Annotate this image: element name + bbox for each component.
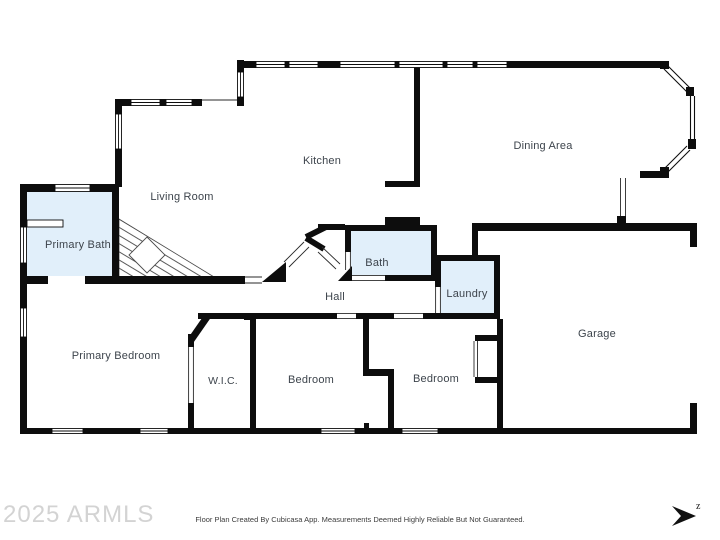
window (238, 72, 244, 97)
window (289, 62, 318, 68)
bath-counter (27, 220, 63, 227)
window (140, 429, 168, 434)
room-label-bedroom-right: Bedroom (413, 373, 459, 385)
fireplace-hatch (119, 219, 219, 280)
window (55, 185, 90, 192)
window (447, 62, 473, 68)
room-label-primary-bath: Primary Bath (45, 239, 111, 251)
floor-plan-page: { "rooms": { "living_room": "Living Room… (0, 0, 720, 540)
window (52, 429, 83, 434)
compass-label: z (696, 501, 700, 512)
window (166, 100, 192, 106)
room-label-primary-bedroom: Primary Bedroom (72, 350, 161, 362)
window (321, 429, 355, 434)
room-label-wic: W.I.C. (208, 375, 238, 387)
room-label-hall: Hall (325, 291, 345, 303)
window (131, 100, 160, 106)
room-label-garage: Garage (578, 328, 616, 340)
bath-fill (351, 231, 431, 275)
window (340, 62, 395, 68)
room-label-kitchen: Kitchen (303, 155, 341, 167)
room-label-bath: Bath (365, 257, 388, 269)
window (402, 429, 438, 434)
primary-bath-fill (27, 192, 112, 276)
bay-window (664, 65, 695, 173)
room-label-living-room: Living Room (150, 191, 213, 203)
room-label-laundry: Laundry (446, 288, 487, 300)
window (477, 62, 507, 68)
window (399, 62, 443, 68)
window (116, 114, 122, 149)
window (256, 62, 285, 68)
footer-disclaimer: Floor Plan Created By Cubicasa App. Meas… (0, 515, 720, 524)
floor-plan-drawing (0, 0, 720, 540)
laundry-fill (441, 261, 494, 313)
window (21, 227, 27, 263)
floor-plan: Living Room Kitchen Dining Area Primary … (0, 0, 720, 540)
room-label-dining-area: Dining Area (513, 140, 572, 152)
wet-room-fills (27, 192, 494, 313)
room-label-bedroom-left: Bedroom (288, 374, 334, 386)
window (21, 308, 27, 337)
